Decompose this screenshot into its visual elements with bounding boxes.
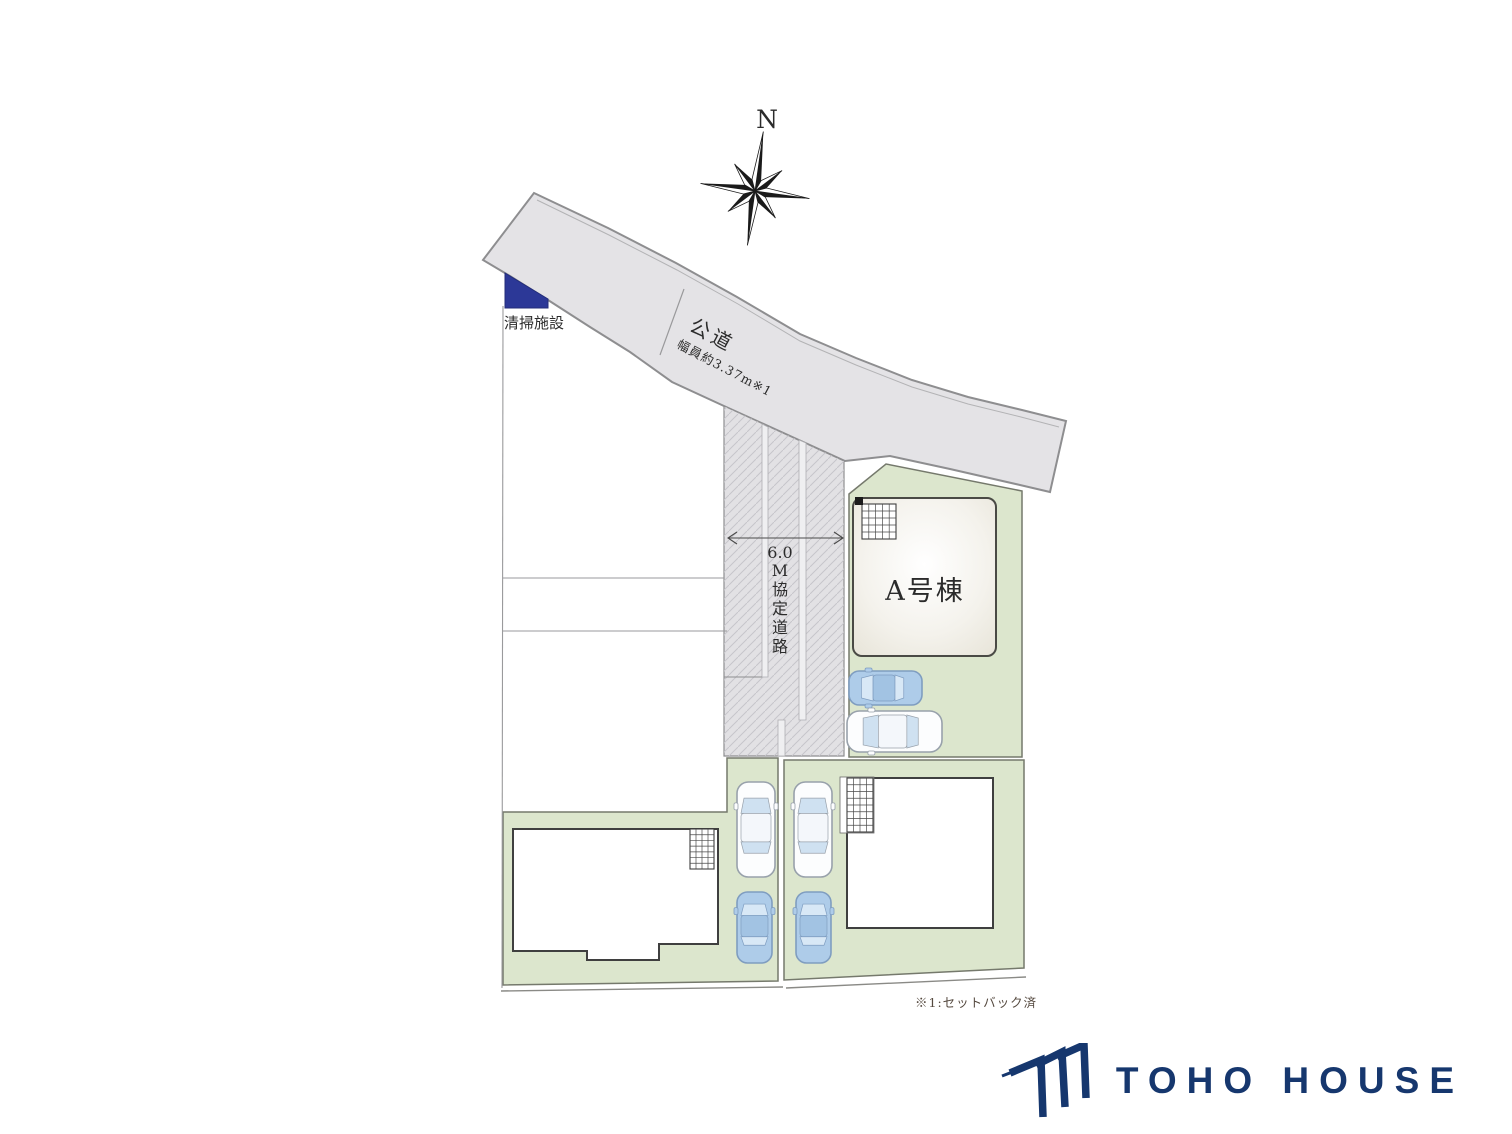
building-bottom-left [513,829,718,960]
balcony-grid-bottom-right [847,778,873,832]
cleaning-facility-label: 清掃施設 [504,314,564,332]
car-c-blue [793,892,834,963]
balcony-grid-bottom-left [690,829,714,869]
compass-north-label: N [756,105,778,134]
car-b-white [734,782,778,877]
car-a-white [847,708,942,755]
agreement-road-label-char: M [772,561,788,580]
setback-note: ※1:セットバック済 [915,995,1037,1010]
site-plan-page: A号棟 N 清掃施設 公道 幅員約3.37m※1 6.0M協定道路 ※1:セット… [0,0,1512,1134]
toho-house-icon [994,1043,1092,1121]
road-lane-strip [799,440,806,720]
agreement-road-label-char: 道 [772,618,788,637]
building-a-label: A号棟 [884,576,965,607]
balcony-grid-building-a [862,504,896,539]
road-lane-strip [778,720,785,756]
agreement-road-label-char: 6.0 [767,543,792,562]
car-c-white [791,782,835,877]
agreement-road-label-char: 協 [772,580,788,599]
agreement-road-label-char: 路 [772,637,788,656]
building-a-marker [855,497,863,505]
compass: N [693,105,818,253]
car-a-blue [849,668,922,708]
agreement-road-label-char: 定 [772,599,788,618]
toho-house-logo: TOHO HOUSE [994,1043,1464,1121]
site-outer-boundary [501,987,783,991]
site-plan-drawing: A号棟 N 清掃施設 公道 幅員約3.37m※1 6.0M協定道路 ※1:セット… [0,0,1512,1134]
car-b-blue [734,892,775,963]
brand-wordmark: TOHO HOUSE [1116,1060,1464,1104]
